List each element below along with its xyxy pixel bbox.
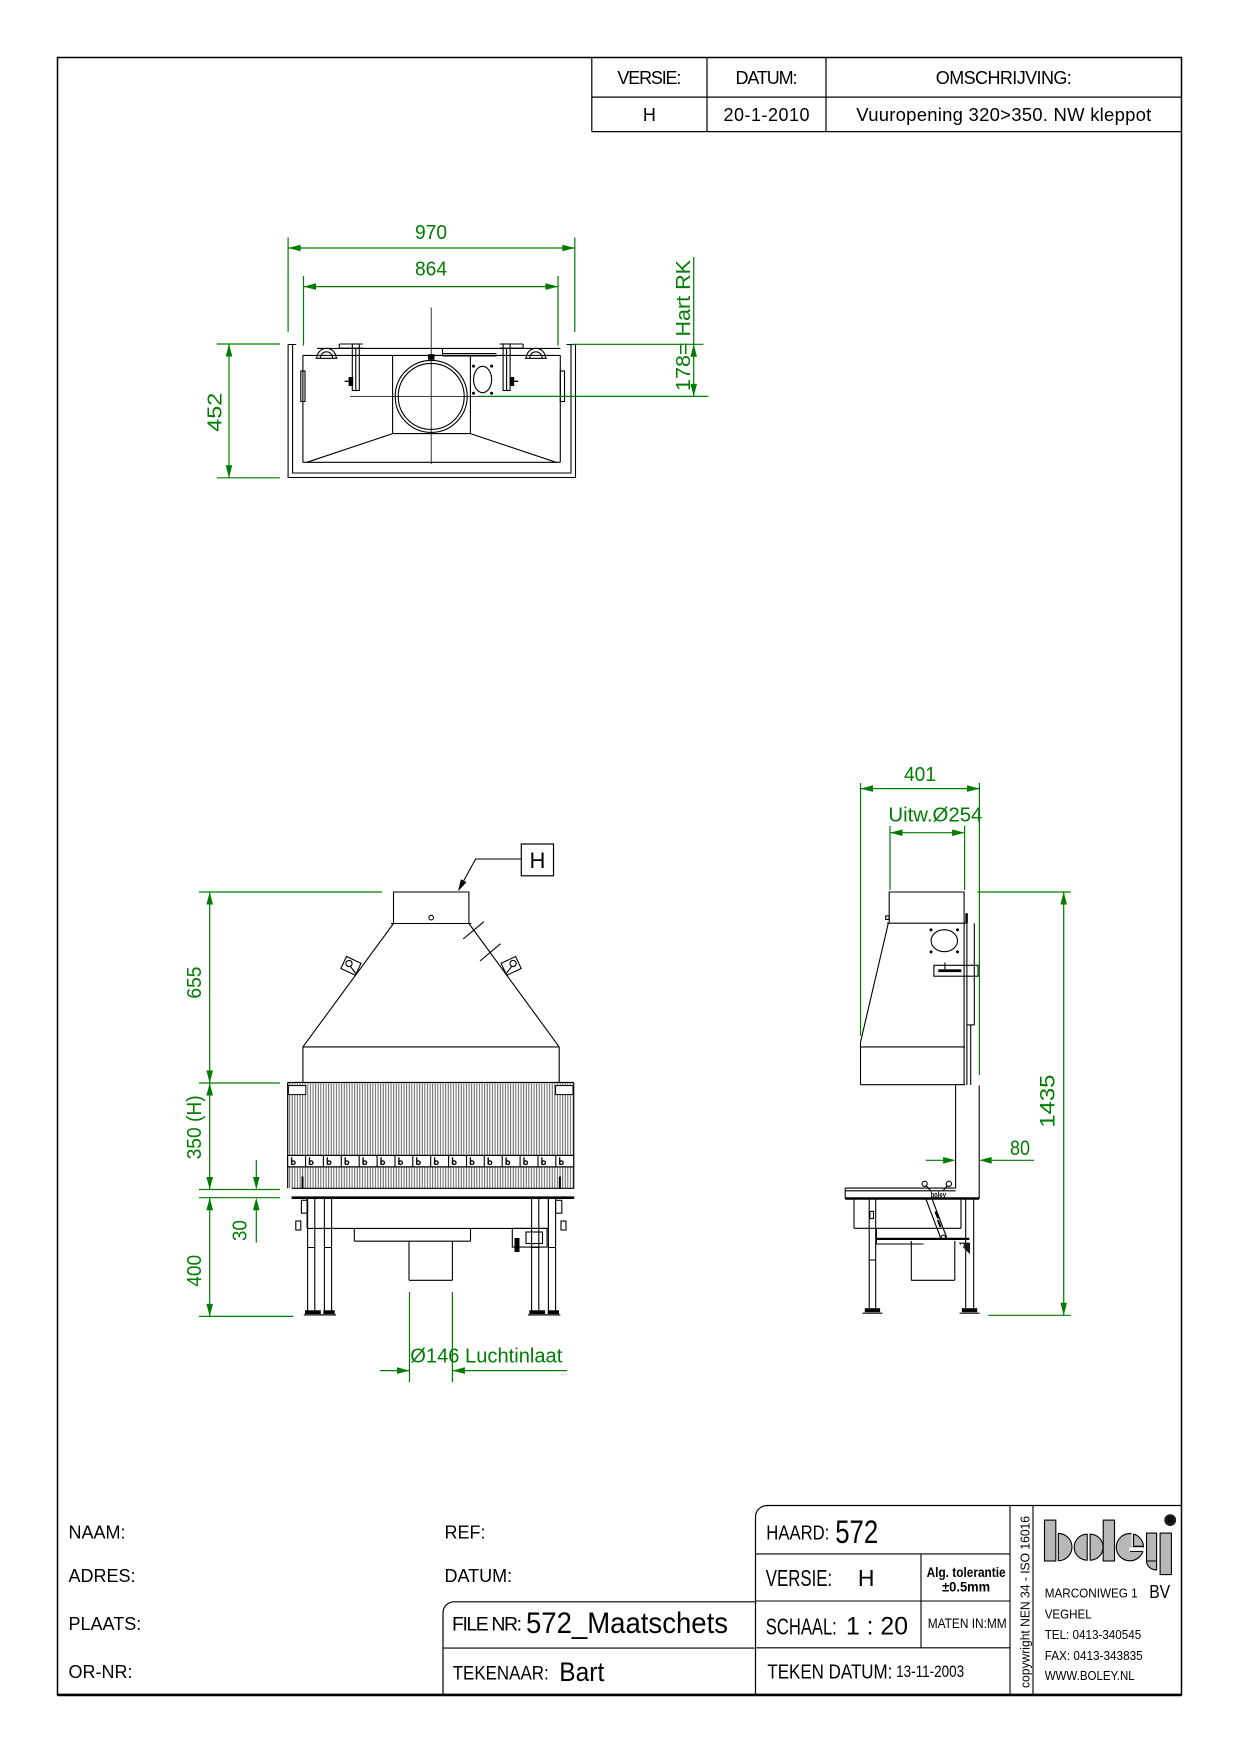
svg-text:401: 401 (904, 764, 936, 786)
svg-text:R: R (1167, 1516, 1173, 1525)
svg-text:ADRES:: ADRES: (69, 1566, 136, 1586)
svg-text:400: 400 (184, 1255, 206, 1287)
svg-text:452: 452 (204, 393, 226, 432)
svg-text:±0.5mm: ±0.5mm (942, 1580, 990, 1595)
svg-text:1435: 1435 (1036, 1075, 1059, 1128)
svg-text:Vuuropening 320>350. NW kleppo: Vuuropening 320>350. NW kleppot (856, 104, 1151, 125)
svg-text:Ø146 Luchtinlaat: Ø146 Luchtinlaat (410, 1345, 562, 1367)
svg-text:MARCONIWEG 1: MARCONIWEG 1 (1045, 1585, 1138, 1600)
svg-text:MATEN IN:MM: MATEN IN:MM (928, 1616, 1007, 1631)
svg-text:copywright NEN 34 - ISO 16016: copywright NEN 34 - ISO 16016 (1018, 1516, 1033, 1688)
svg-text:30: 30 (229, 1220, 251, 1241)
svg-text:boley: boley (931, 1190, 947, 1200)
svg-text:572_Maatschets: 572_Maatschets (526, 1607, 728, 1640)
svg-text:H: H (643, 105, 656, 125)
svg-text:80: 80 (1010, 1137, 1030, 1160)
svg-text:20-1-2010: 20-1-2010 (724, 105, 810, 125)
svg-text:NAAM:: NAAM: (69, 1523, 126, 1543)
svg-text:FAX: 0413-343835: FAX: 0413-343835 (1045, 1648, 1143, 1663)
svg-text:Bart: Bart (559, 1657, 604, 1687)
svg-text:H: H (858, 1565, 875, 1591)
svg-text:FILE NR:: FILE NR: (452, 1614, 522, 1636)
svg-text:TEKEN DATUM:: TEKEN DATUM: (767, 1661, 892, 1684)
svg-text:REF:: REF: (445, 1523, 486, 1543)
svg-text:572: 572 (835, 1514, 878, 1550)
svg-text:655: 655 (184, 967, 206, 999)
svg-text:OMSCHRIJVING:: OMSCHRIJVING: (936, 68, 1072, 88)
svg-text:BV: BV (1149, 1581, 1171, 1602)
svg-text:Uitw.Ø254: Uitw.Ø254 (888, 805, 982, 827)
svg-text:Alg. tolerantie: Alg. tolerantie (927, 1565, 1006, 1580)
svg-text:HAARD:: HAARD: (766, 1523, 829, 1545)
svg-text:VERSIE:: VERSIE: (766, 1565, 832, 1591)
svg-text:178= Hart RK: 178= Hart RK (673, 259, 695, 391)
svg-text:VEGHEL: VEGHEL (1045, 1607, 1092, 1622)
svg-text:TEKENAAR:: TEKENAAR: (453, 1663, 549, 1685)
svg-text:13-11-2003: 13-11-2003 (896, 1663, 964, 1681)
svg-text:SCHAAL:: SCHAAL: (766, 1614, 837, 1640)
svg-text:OR-NR:: OR-NR: (69, 1662, 133, 1682)
svg-text:DATUM:: DATUM: (445, 1566, 513, 1586)
svg-text:1 : 20: 1 : 20 (846, 1613, 908, 1641)
svg-text:TEL: 0413-340545: TEL: 0413-340545 (1045, 1627, 1142, 1642)
svg-text:DATUM:: DATUM: (736, 68, 798, 88)
svg-text:864: 864 (415, 259, 447, 281)
svg-text:VERSIE:: VERSIE: (617, 68, 681, 88)
svg-text:PLAATS:: PLAATS: (69, 1614, 142, 1634)
svg-text:970: 970 (415, 222, 447, 244)
svg-text:H: H (529, 848, 545, 873)
svg-text:WWW.BOLEY.NL: WWW.BOLEY.NL (1045, 1668, 1135, 1683)
svg-text:350 (H): 350 (H) (184, 1095, 206, 1159)
